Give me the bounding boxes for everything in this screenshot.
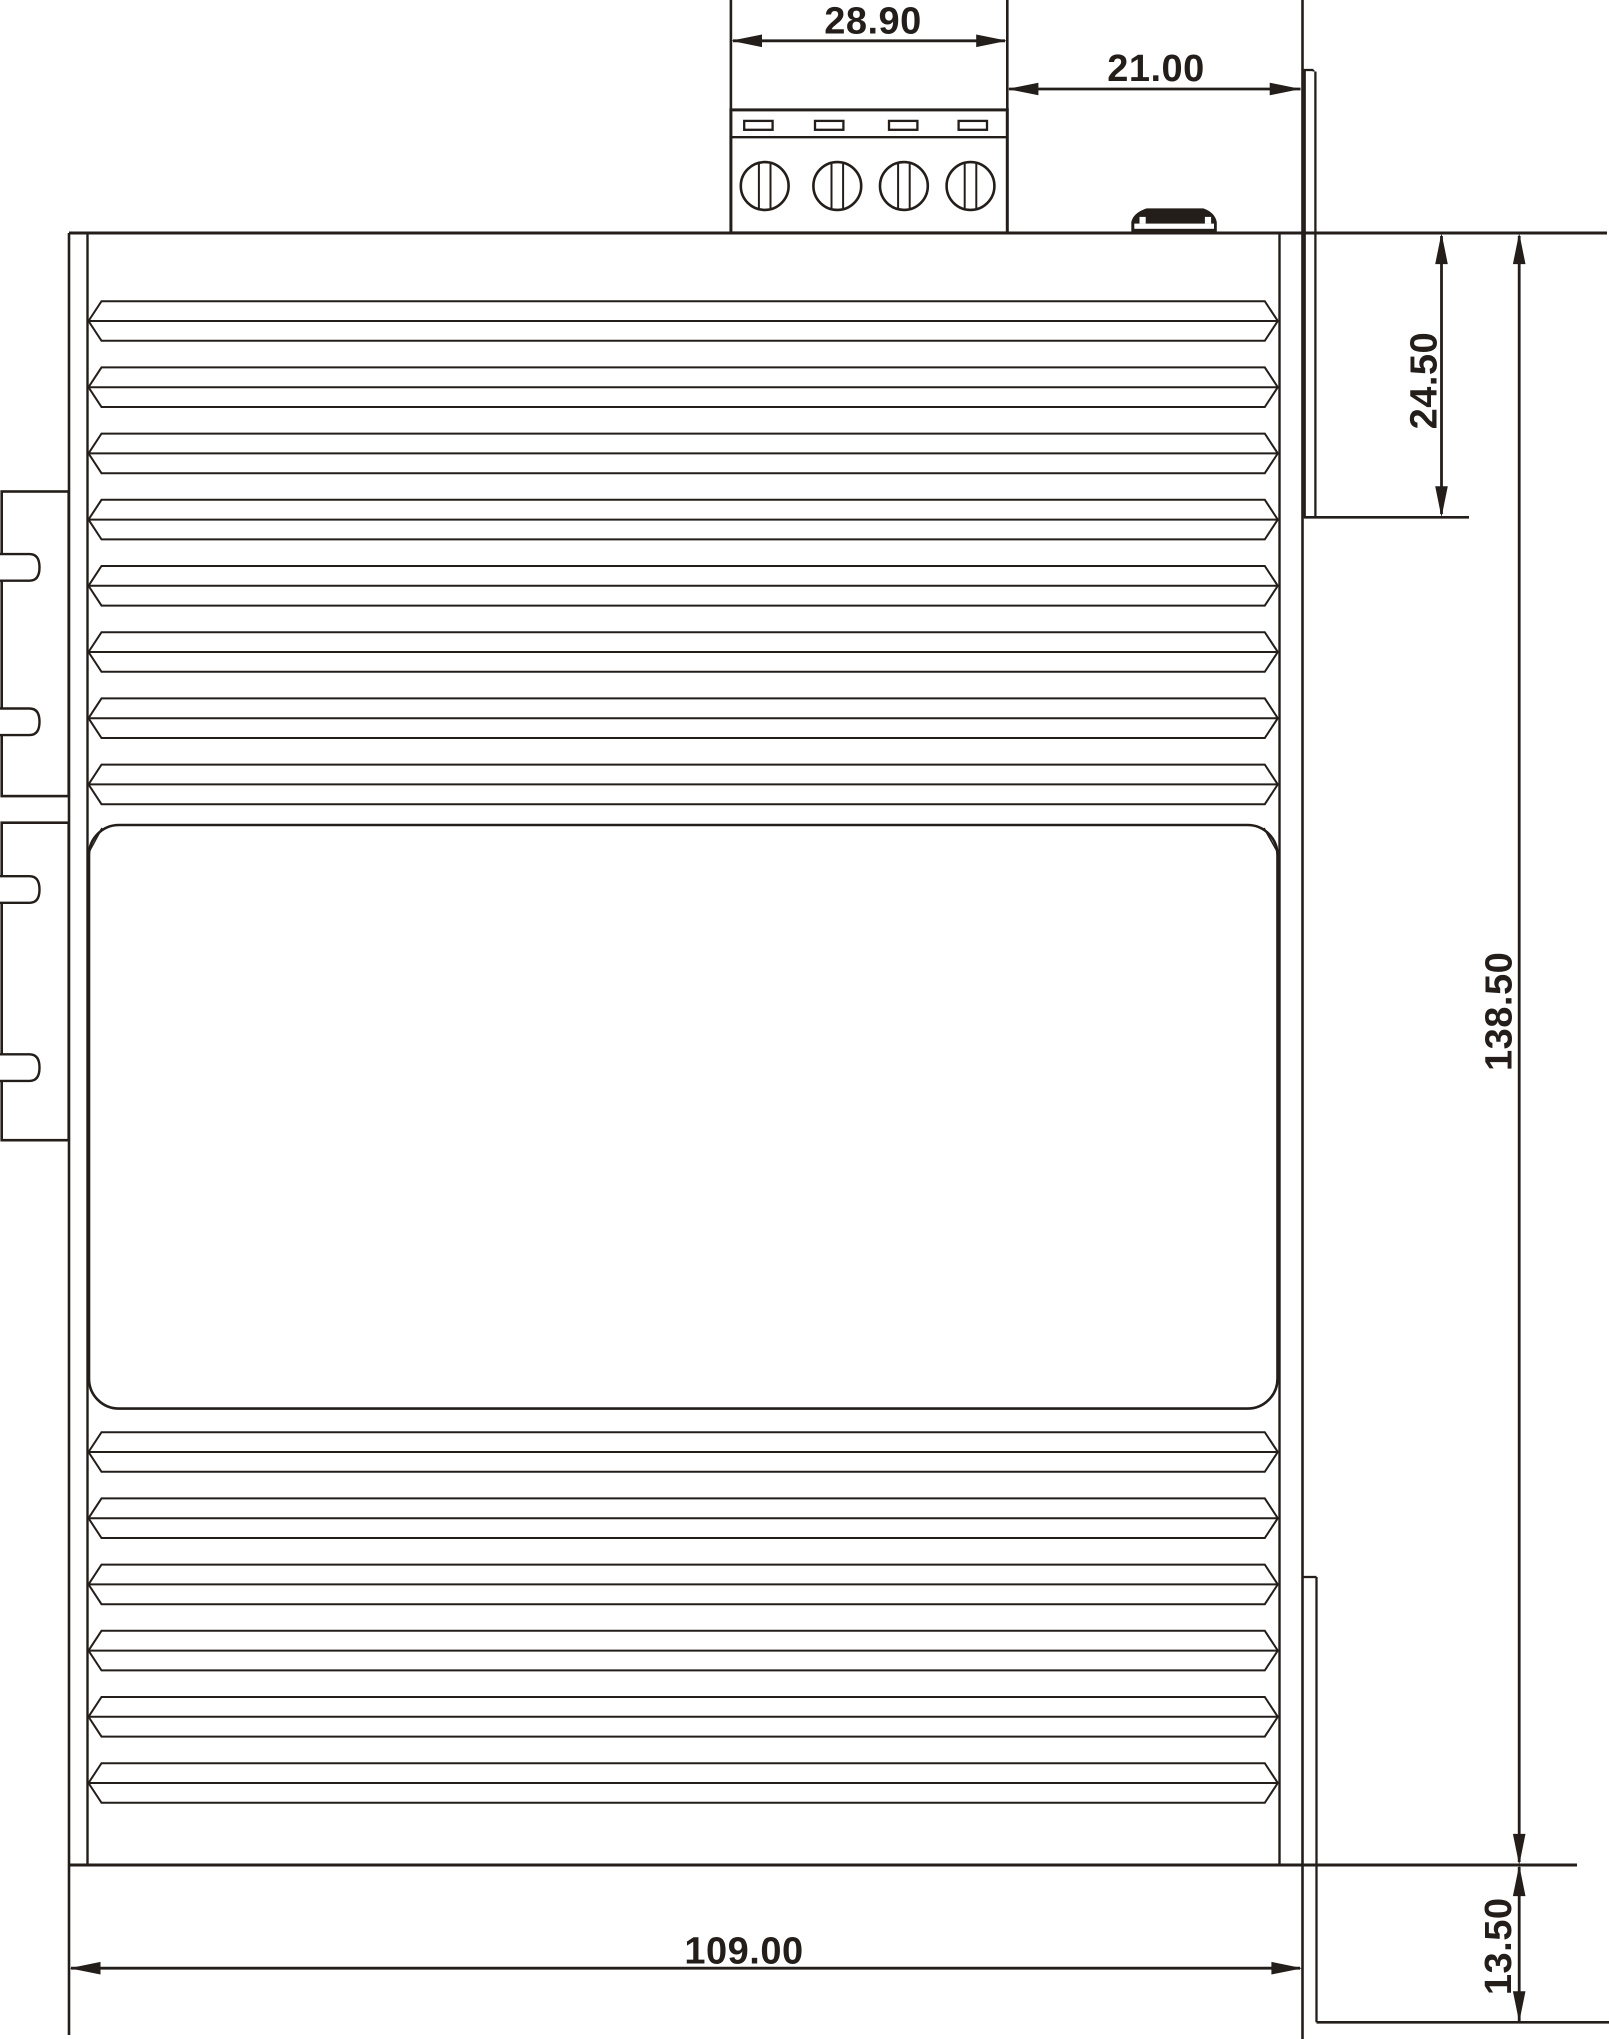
svg-text:109.00: 109.00 [684, 1931, 803, 1973]
svg-text:24.50: 24.50 [1403, 332, 1445, 430]
svg-text:21.00: 21.00 [1107, 48, 1205, 90]
svg-text:138.50: 138.50 [1478, 952, 1520, 1071]
svg-text:13.50: 13.50 [1478, 1898, 1520, 1996]
svg-text:28.90: 28.90 [824, 1, 922, 43]
